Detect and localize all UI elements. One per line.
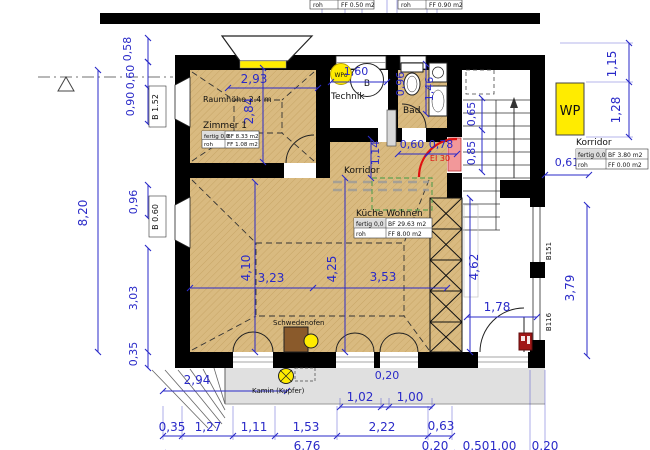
stove-flue-circle xyxy=(304,334,318,348)
dim-063: 0,63 xyxy=(428,419,455,433)
opening-above-dashed xyxy=(466,70,494,94)
dim-078: 0,78 xyxy=(429,138,454,151)
top-partial-table-1: roh FF 0.50 m2 xyxy=(310,0,375,9)
dim-020-b: 0,20 xyxy=(422,439,449,450)
dim-065: 0,65 xyxy=(465,102,478,127)
technik-label: Technik xyxy=(330,92,365,102)
dim-462: 4,62 xyxy=(467,254,481,281)
dim-353: 3,53 xyxy=(370,270,397,284)
dim-153: 1,53 xyxy=(293,420,320,434)
dim-085: 0,85 xyxy=(465,141,478,166)
dim-050: 0,50 xyxy=(463,439,490,450)
dim-323: 3,23 xyxy=(258,271,285,285)
technik-door-leaf xyxy=(387,110,396,146)
fire-rating-label: EI 30 xyxy=(430,154,450,163)
dim-061: 0,61 xyxy=(555,156,580,169)
dim-111: 1,11 xyxy=(241,420,268,434)
table-cell: BF 29.63 m2 xyxy=(388,221,426,228)
dim-146: 1,46 xyxy=(423,77,436,102)
korridor-label: Korridor xyxy=(344,166,380,176)
dim-676: 6,76 xyxy=(294,439,321,450)
dim-102: 1,02 xyxy=(347,390,374,404)
dim-425: 4,25 xyxy=(325,256,339,283)
dim-303: 3,03 xyxy=(127,286,140,311)
table-cell: FF 0.50 m2 xyxy=(341,2,375,9)
dim-410: 4,10 xyxy=(239,255,253,282)
wp-unit-label: WP xyxy=(560,104,581,119)
radiator-strip xyxy=(240,61,286,68)
corridor-cabinet xyxy=(464,205,478,297)
bad-label: Bad xyxy=(403,106,420,116)
dim-222: 2,22 xyxy=(369,420,396,434)
dim-035-left: 0,35 xyxy=(127,342,140,367)
dim-178: 1,78 xyxy=(484,300,511,314)
wall-under-zimmer xyxy=(175,163,284,178)
kueche-label: Küche Wohnen xyxy=(356,209,423,219)
wall-right-glazing xyxy=(530,207,545,352)
table-cell: fertig 0,0 xyxy=(578,152,606,159)
korridor-right-info-table: fertig 0,0 BF 3.80 m2 roh FF 0.00 m2 xyxy=(576,149,648,169)
zimmer1-height-note: Raumhöhe 2.4 m xyxy=(203,95,272,104)
shaft-crosshatch xyxy=(430,198,462,352)
dim-114: 1,14 xyxy=(369,141,382,166)
dim-020-a: 0,20 xyxy=(375,369,400,382)
korridor-right-label: Korridor xyxy=(576,138,612,148)
table-cell: fertig 0,0 xyxy=(204,134,230,140)
table-cell: roh xyxy=(401,2,411,9)
window-b060-label: B 0.60 xyxy=(151,204,160,230)
zimmer1-label: Zimmer 1 xyxy=(203,121,247,131)
table-cell: BF 8.33 m2 xyxy=(227,134,259,140)
table-cell: FF 0.00 m2 xyxy=(608,162,642,169)
wall-b116-label: B116 xyxy=(545,312,553,331)
schwedenofen-label: Schwedenofen xyxy=(273,319,324,327)
table-cell: roh xyxy=(204,142,214,148)
dim-060-door: 0,60 xyxy=(400,138,425,151)
dim-820: 8,20 xyxy=(76,200,90,227)
dim-060: 0,60 xyxy=(124,65,137,90)
dim-058: 0,58 xyxy=(121,37,134,62)
wall-stair-stub xyxy=(500,180,545,198)
table-cell: roh xyxy=(356,231,366,238)
window-zimmer1 xyxy=(175,77,190,127)
dim-096-bad: 0,96 xyxy=(394,72,407,97)
retaining-wall-top xyxy=(100,13,540,24)
wall-stairwell xyxy=(447,55,462,137)
table-cell: fertig 0,0 xyxy=(356,221,384,228)
kueche-info-table: fertig 0,0 BF 29.63 m2 roh FF 8.00 m2 xyxy=(354,218,432,238)
dim-127: 1,27 xyxy=(195,420,222,434)
dim-096-left: 0,96 xyxy=(127,190,140,215)
floor-plan: B WPo WP xyxy=(0,0,650,450)
table-cell: FF 0.90 m2 xyxy=(429,2,463,9)
dim-100-a: 1,00 xyxy=(397,390,424,404)
dim-294: 2,94 xyxy=(184,373,211,387)
wall-b151-label: B151 xyxy=(545,242,553,260)
dim-379: 3,79 xyxy=(563,275,577,302)
dim-090: 0,90 xyxy=(124,92,137,117)
dim-020-c: 0,20 xyxy=(532,439,559,450)
kamin-label: Kamin (Kupfer) xyxy=(252,387,305,395)
window-kueche xyxy=(175,197,190,248)
window-b152-label: B 1.52 xyxy=(151,94,160,120)
toilet-tank xyxy=(401,63,423,72)
table-cell: roh xyxy=(578,162,588,169)
boiler-label: B xyxy=(364,79,370,89)
level-marker-icon xyxy=(58,77,74,91)
fire-extinguisher-icon xyxy=(519,333,532,350)
table-cell: FF 1.08 m2 xyxy=(227,142,258,148)
wall-zimmer-technik xyxy=(316,55,330,178)
zimmer1-info-table: fertig 0,0 BF 8.33 m2 roh FF 1.08 m2 xyxy=(202,131,259,148)
dim-128: 1,28 xyxy=(609,97,623,124)
dim-035-b: 0,35 xyxy=(159,420,186,434)
table-cell: FF 8.00 m2 xyxy=(388,231,422,238)
table-cell: roh xyxy=(313,2,323,9)
dim-160: 1,60 xyxy=(344,65,369,78)
table-cell: BF 3.80 m2 xyxy=(608,152,643,159)
top-partial-table-2: roh FF 0.90 m2 xyxy=(398,0,463,9)
dim-100-b: 1,00 xyxy=(490,439,517,450)
dim-115: 1,15 xyxy=(605,51,619,78)
stair-direction-arrow-icon xyxy=(510,97,518,108)
dim-293: 2,93 xyxy=(241,72,268,86)
